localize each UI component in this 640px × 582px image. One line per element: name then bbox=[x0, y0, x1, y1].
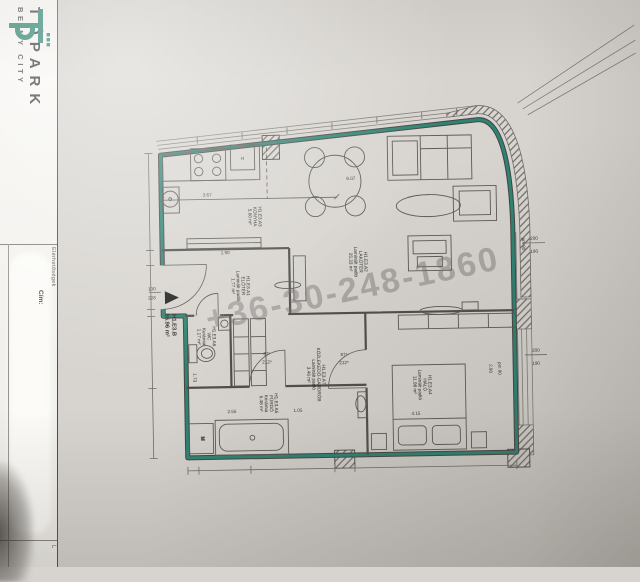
topark-logo-icon bbox=[6, 7, 52, 47]
svg-text:1.17 m²: 1.17 m² bbox=[196, 329, 201, 345]
kitchen-sink bbox=[162, 191, 178, 207]
room-bedroom bbox=[369, 301, 519, 451]
label-bedroom: H1.E3.A4 HÁLÓ Laminált padló 11.98 m² bbox=[412, 369, 433, 400]
dim-entry-bot: 228 bbox=[148, 295, 156, 300]
dim-kitchen: 3.67 bbox=[203, 192, 212, 197]
pillow bbox=[432, 425, 460, 444]
dim-wc: 1.73 bbox=[192, 373, 197, 382]
washer-label: M bbox=[200, 437, 205, 441]
corner-label: L bbox=[47, 545, 56, 575]
label-bathroom: H1.E3.A5 FÜRDŐ Kerámia 6.48 m² bbox=[259, 393, 279, 414]
pillow bbox=[398, 426, 426, 445]
svg-text:65.96 m²: 65.96 m² bbox=[163, 314, 170, 337]
svg-text:6.48 m²: 6.48 m² bbox=[259, 396, 264, 412]
toilet-tank bbox=[189, 345, 197, 363]
svg-text:3.46 m²: 3.46 m² bbox=[306, 367, 311, 383]
floor-plan-svg: H bbox=[0, 0, 640, 567]
dim-living: 6.07 bbox=[346, 176, 355, 181]
brand-logo: TÓPARK BE MY CITY bbox=[6, 7, 52, 233]
dim-entry-top: 100 bbox=[148, 286, 156, 291]
photo-shadow bbox=[0, 462, 34, 582]
nightstand bbox=[471, 432, 486, 448]
dim-bed-w: 4.15 bbox=[411, 411, 420, 416]
label-hall: H1.E3.A7 KÖZLEKEDŐ-GARDRÓB Laminált padl… bbox=[306, 347, 327, 401]
address-label: Cím: bbox=[35, 290, 44, 350]
nightstand bbox=[371, 433, 386, 449]
entrance-arrow bbox=[165, 291, 179, 304]
dim-bath: 2.55 bbox=[227, 409, 236, 414]
fridge-label: H bbox=[241, 156, 244, 161]
dim-parapet2: pm 90 bbox=[497, 362, 502, 375]
sofa bbox=[387, 135, 472, 180]
label-kitchen: H1.E3.A3 KONYHA 5.60 m² bbox=[247, 206, 262, 227]
dim-door1-top: 87⁵ bbox=[263, 351, 270, 356]
contact-label: Elérhetőségek bbox=[47, 247, 56, 357]
svg-text:H1.E3.B: H1.E3.B bbox=[170, 314, 176, 336]
dining-table bbox=[304, 147, 365, 217]
label-apartment: H1.E3.B 65.96 m² bbox=[163, 313, 176, 336]
rug bbox=[396, 194, 460, 217]
dim-window1-bot: 190 bbox=[530, 249, 538, 254]
bedroom-wardrobe bbox=[398, 313, 516, 329]
dim-window1-top: 200 bbox=[530, 236, 538, 241]
dim-window2-top: 200 bbox=[532, 348, 540, 353]
column-hatch bbox=[262, 135, 279, 159]
dim-door2-bot: 212⁵ bbox=[339, 360, 349, 365]
dim-bath2: 1.05 bbox=[293, 408, 302, 413]
dim-door2-top: 87⁵ bbox=[340, 352, 347, 357]
dim-bed-h: 2.90 bbox=[488, 364, 493, 373]
svg-text:1.77 m²: 1.77 m² bbox=[231, 278, 236, 294]
dim-counter: 1.90 bbox=[221, 250, 230, 255]
dim-door1-bot: 212⁵ bbox=[262, 359, 272, 364]
room-kitchen: H bbox=[158, 143, 340, 249]
dim-window2-bot: 190 bbox=[532, 361, 540, 366]
floorplan-photo: H bbox=[0, 0, 640, 567]
svg-text:11.98 m²: 11.98 m² bbox=[412, 376, 417, 395]
dim-parapet1: pm 90 bbox=[521, 238, 526, 251]
svg-text:5.60 m²: 5.60 m² bbox=[247, 209, 252, 225]
